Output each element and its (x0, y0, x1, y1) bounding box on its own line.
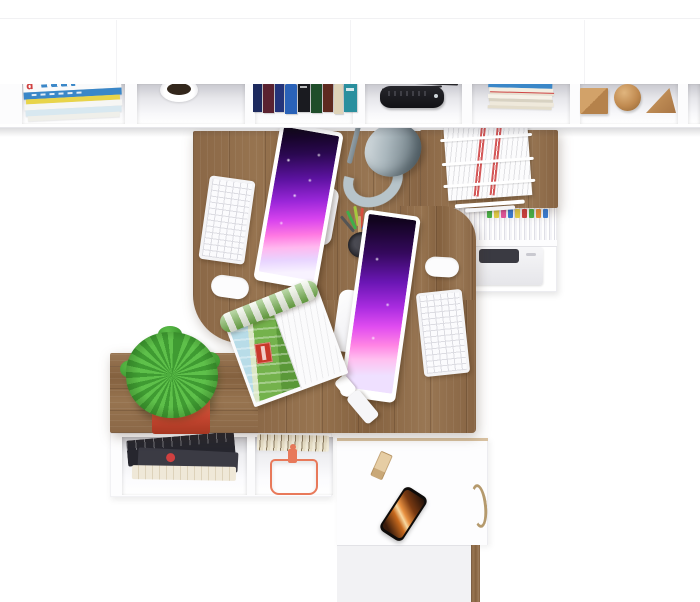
keyboard-2 (416, 289, 471, 377)
farmhouse-illustration (254, 342, 273, 364)
shelf-seam (584, 20, 585, 84)
spine-text-squiggle (32, 92, 82, 97)
potted-plant (124, 332, 222, 436)
speaker-group (372, 84, 462, 110)
book-spine (311, 84, 322, 113)
farmhouse-window (261, 346, 267, 360)
magazine-edge (488, 105, 552, 110)
book-spine (298, 84, 310, 112)
wall-shelf: d (0, 0, 700, 128)
magazine-stack: d (23, 84, 123, 123)
book-spine (263, 84, 274, 113)
wooden-cube (580, 88, 608, 114)
plant-foliage (126, 332, 218, 418)
shelf-seam (116, 20, 117, 84)
speaker-led (434, 94, 438, 98)
book-label (346, 88, 354, 91)
cable-grommet-2 (424, 256, 459, 278)
book-row (253, 84, 349, 112)
wooden-wedge (646, 88, 676, 113)
pot-soil (167, 84, 191, 95)
book-spine (275, 84, 284, 112)
shelf-opening-7 (688, 84, 700, 124)
book-spine (344, 84, 357, 112)
shelf-back-edge (0, 18, 700, 19)
book-spine (285, 84, 297, 114)
keyboard-keys (202, 179, 252, 262)
book-spine (334, 84, 343, 114)
shelf-top (0, 0, 700, 84)
speaker (380, 86, 444, 108)
wooden-sphere (614, 84, 641, 111)
office-scene: d (0, 0, 700, 602)
keyboard-keys (419, 292, 467, 374)
wood-shapes (580, 84, 678, 114)
shelf-shadow (0, 128, 700, 137)
magazine-pile (488, 84, 553, 111)
speaker-grille (388, 91, 428, 96)
book-spine (253, 84, 262, 112)
monitor-screen-2 (345, 214, 417, 394)
book-spine (323, 84, 333, 112)
spine-text-squiggle (41, 84, 75, 88)
book-label (300, 86, 307, 88)
shelf-seam (350, 20, 351, 84)
shelf-compartments: d (0, 84, 700, 128)
